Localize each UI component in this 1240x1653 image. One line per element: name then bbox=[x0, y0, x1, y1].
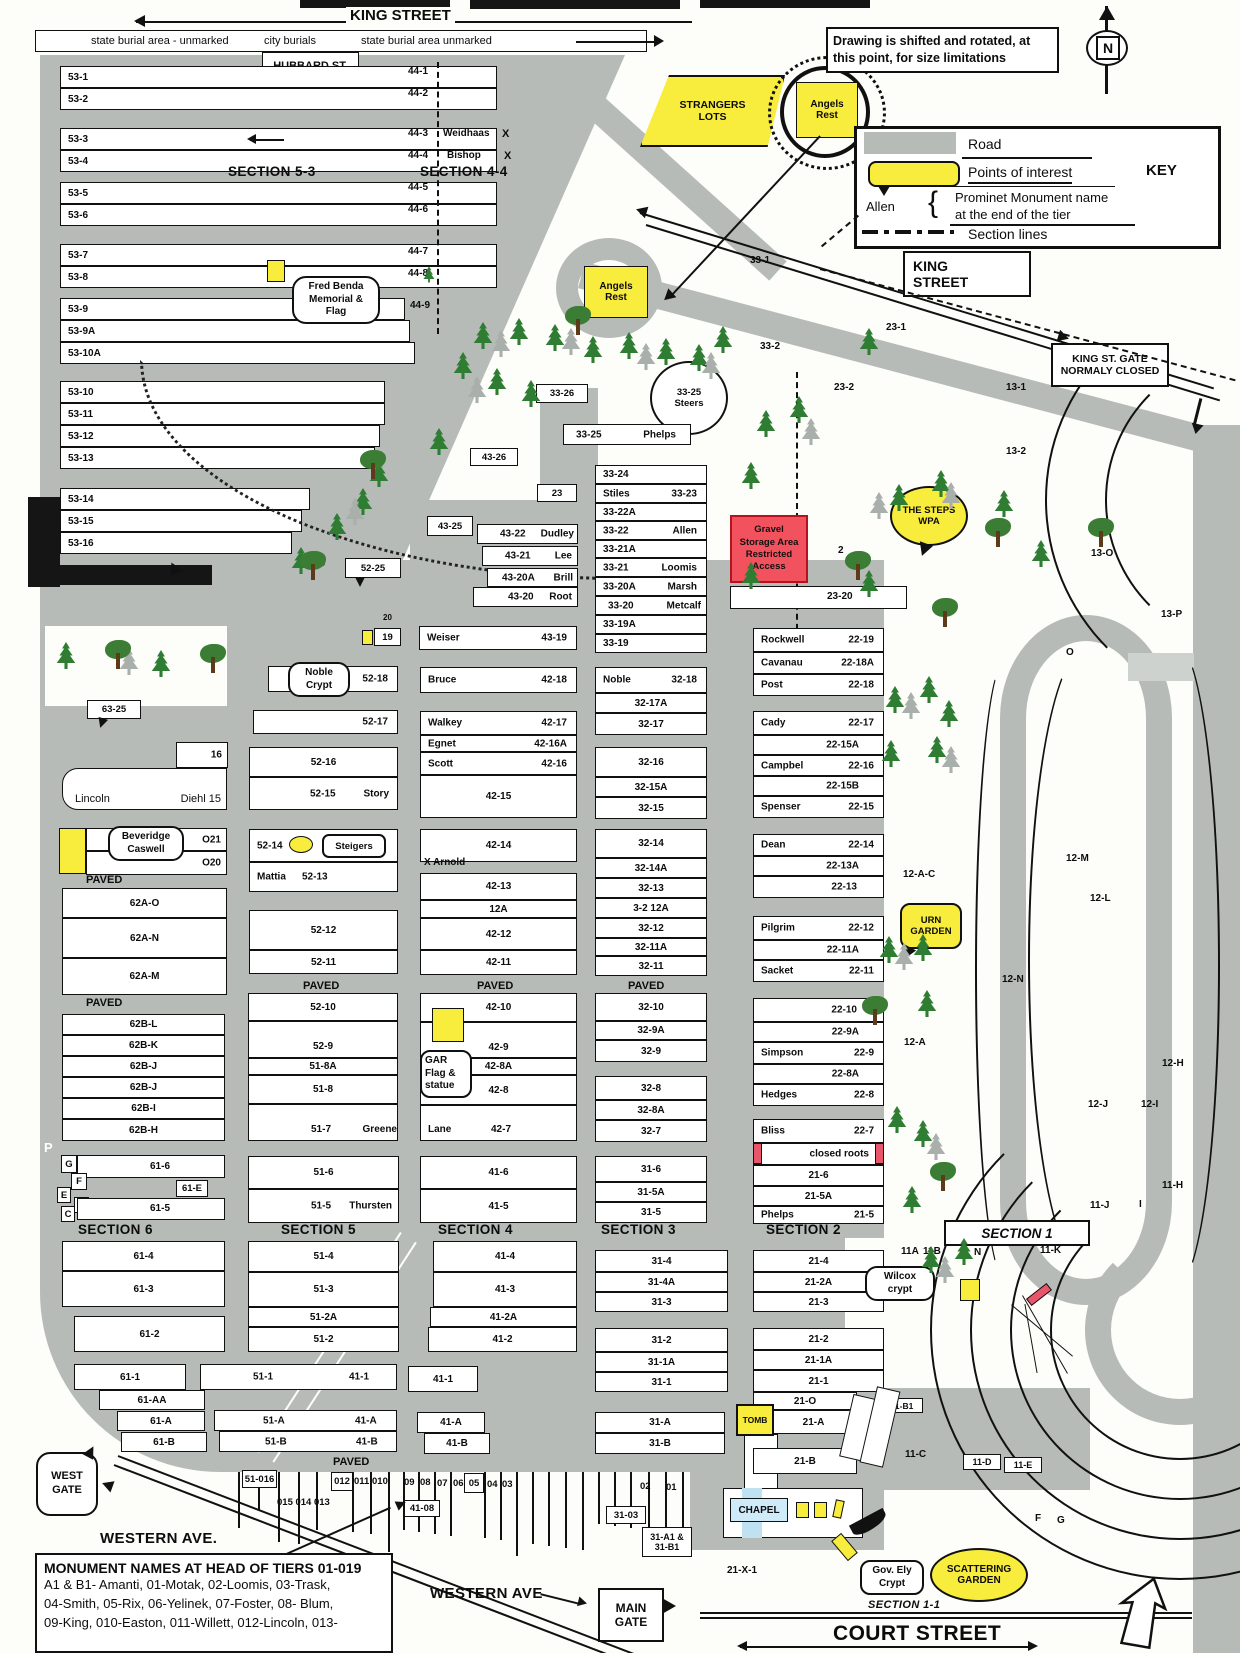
pine-tree-icon bbox=[582, 336, 604, 363]
chapel-marker bbox=[814, 1502, 827, 1518]
tier-row: 61-2 bbox=[74, 1316, 225, 1352]
monument-label: Rockwell bbox=[761, 635, 804, 646]
tier-label: 41-5 bbox=[488, 1201, 508, 1212]
poi-label: GARDEN bbox=[910, 926, 951, 937]
tier-label: 51-A bbox=[263, 1415, 285, 1426]
monument-label: Pilgrim bbox=[761, 923, 795, 934]
lot-box: G bbox=[61, 1155, 77, 1173]
tier-row: 31-4A bbox=[595, 1272, 728, 1292]
lot-box: 23 bbox=[537, 484, 577, 502]
black-area bbox=[28, 497, 60, 587]
tier-row: 21-4 bbox=[753, 1250, 884, 1272]
poi-label: Crypt bbox=[306, 680, 332, 691]
burial-band: state burial area - unmarked city burial… bbox=[35, 30, 647, 52]
tier-row: 62B-H bbox=[62, 1119, 225, 1141]
tier-label: 51-1 bbox=[253, 1372, 273, 1383]
pine-tree-icon bbox=[712, 326, 734, 353]
tier-label: 32-11 bbox=[638, 961, 663, 972]
key-title: KEY bbox=[1146, 162, 1177, 179]
tier-label: 42-7 bbox=[491, 1124, 511, 1135]
lot-label: I bbox=[1139, 1199, 1142, 1210]
tier-row: Pilgrim22-12 bbox=[753, 916, 884, 940]
tier-label: 31-2 bbox=[651, 1335, 671, 1346]
lot-box: 11-D bbox=[963, 1454, 1001, 1470]
tier-row: Weiser43-19 bbox=[419, 626, 577, 650]
tier-row: 22-15A bbox=[753, 735, 884, 755]
tier-label: 44-9 bbox=[410, 300, 430, 311]
monument-label: Hedges bbox=[761, 1090, 797, 1101]
tier-row: 53-5 bbox=[60, 182, 497, 204]
shadow-tree-icon bbox=[900, 692, 922, 719]
tier-label: 32-7 bbox=[641, 1126, 661, 1137]
tier-label: 44-3 bbox=[408, 128, 428, 139]
lot-label: 11-J bbox=[1090, 1200, 1109, 1211]
tier-line bbox=[532, 1472, 534, 1544]
tier-line bbox=[598, 1472, 600, 1524]
burial-band-label: state burial area unmarked bbox=[361, 35, 492, 47]
monument-label: Lane bbox=[428, 1124, 451, 1135]
tier-row: 51-3 bbox=[248, 1272, 399, 1307]
poi-label: GARDEN bbox=[957, 1575, 1000, 1586]
monument-label: Phelps bbox=[761, 1210, 794, 1221]
lot-label: 23-2 bbox=[834, 382, 854, 393]
pine-tree-icon bbox=[740, 462, 762, 489]
tier-row: 32-15A bbox=[595, 777, 707, 797]
beveridge-marker bbox=[59, 828, 86, 874]
monument-label: Allen bbox=[673, 525, 697, 536]
tier-label: 41-1 bbox=[433, 1374, 453, 1385]
tier-label: 32-17 bbox=[638, 719, 664, 730]
cemetery-map: KING STREET state burial area - unmarked… bbox=[0, 0, 1240, 1653]
tier-label: 22-11A bbox=[827, 945, 859, 956]
tier-label: 53-10A bbox=[68, 348, 101, 359]
poi-label: STRANGERS bbox=[680, 99, 746, 111]
arrow-left-icon bbox=[242, 134, 256, 144]
tier-label: 53-6 bbox=[68, 210, 88, 221]
tier-label: 51-5 bbox=[311, 1201, 331, 1212]
tier-label: 44-6 bbox=[408, 204, 428, 215]
tier-row: 52-15Story bbox=[249, 777, 398, 810]
tier-label: 41-A bbox=[355, 1415, 377, 1426]
tier-label: 44-5 bbox=[408, 182, 428, 193]
tier-row: Sacket22-11 bbox=[753, 960, 884, 982]
shadow-tree-icon bbox=[800, 418, 822, 445]
tier-row: 32-14A bbox=[595, 858, 707, 878]
street-label: COURT STREET bbox=[833, 1622, 1001, 1646]
tier-line bbox=[516, 1472, 518, 1556]
road-letter: P bbox=[44, 1140, 53, 1155]
section-label: SECTION 2 bbox=[766, 1222, 841, 1237]
tier-label: 31-B bbox=[649, 1438, 671, 1449]
tier-label: 61-AA bbox=[138, 1395, 167, 1406]
tier-label: 52-17 bbox=[362, 717, 388, 728]
tier-label: 33-19A bbox=[603, 619, 636, 630]
tier-row: 33-21Loomis bbox=[595, 558, 707, 577]
burial-band-label: city burials bbox=[264, 35, 316, 47]
tier-box: 31-03 bbox=[606, 1506, 646, 1524]
tier-row: 62A-N bbox=[62, 918, 227, 958]
tier-label: 41-B bbox=[446, 1438, 468, 1449]
tier-label: 53-14 bbox=[68, 494, 94, 505]
tier-label: 44-2 bbox=[408, 88, 428, 99]
lot-label: 23-1 bbox=[886, 322, 906, 333]
street-label: STREET bbox=[913, 274, 968, 290]
poi-label: Rest bbox=[605, 292, 627, 303]
tier-label: 08 bbox=[420, 1477, 431, 1488]
beveridge-callout: Beveridge Caswell bbox=[108, 826, 184, 861]
tier-label: 41-B bbox=[356, 1436, 378, 1447]
lot-box: 33-26 bbox=[536, 384, 588, 403]
monument-label: Scott bbox=[428, 758, 453, 769]
monument-label: Root bbox=[549, 592, 572, 603]
tier-row: Lincoln Diehl 15 bbox=[62, 768, 227, 810]
deciduous-tree-icon bbox=[862, 996, 888, 1025]
tier-row: 32-14 bbox=[595, 829, 707, 858]
tier-row: 42-11 bbox=[420, 950, 577, 975]
poi-label: Noble bbox=[305, 667, 333, 678]
lot-label: 12-L bbox=[1090, 893, 1111, 904]
tier-label: 53-15 bbox=[68, 516, 94, 527]
tier-row: 42-15 bbox=[420, 775, 577, 818]
tier-label: 41-1 bbox=[349, 1372, 369, 1383]
x-mark: X bbox=[502, 128, 509, 140]
tier-row: Bruce42-18 bbox=[420, 667, 577, 693]
tier-row: 31-2 bbox=[595, 1328, 728, 1352]
tier-label: 33-23 bbox=[671, 488, 697, 499]
tier-label: 51-8A bbox=[309, 1061, 336, 1072]
tier-row: Simpson22-9 bbox=[753, 1042, 884, 1064]
tier-row: 32-10 bbox=[595, 993, 707, 1021]
tier-label: 61-4 bbox=[133, 1251, 153, 1262]
monument-label: Thursten bbox=[349, 1201, 392, 1212]
poi-label: URN bbox=[921, 915, 942, 926]
monument-label: Simpson bbox=[761, 1048, 803, 1059]
tier-line bbox=[582, 1472, 584, 1550]
section-label: SECTION 4 bbox=[438, 1222, 513, 1237]
tier-label: 22-18 bbox=[848, 680, 874, 691]
tier-label: 51-2 bbox=[313, 1334, 333, 1345]
key-rule bbox=[962, 157, 1092, 159]
tier-label: 32-11A bbox=[635, 942, 667, 953]
king-street-box: KING STREET bbox=[903, 251, 1031, 297]
tier-row: 43-22Dudley bbox=[477, 524, 578, 544]
monument-label: Metcalf bbox=[667, 600, 701, 611]
tier-label: 53-12 bbox=[68, 431, 94, 442]
arrow-icon bbox=[577, 1596, 593, 1609]
tier-label: 07 bbox=[437, 1478, 448, 1489]
monument-label: Cavanau bbox=[761, 658, 803, 669]
tier-row: 33-22Allen bbox=[595, 521, 707, 540]
tier-label: 010 bbox=[372, 1476, 388, 1487]
tier-label: 22-16 bbox=[848, 760, 874, 771]
lot-box: 19 bbox=[374, 628, 401, 646]
section-label: SECTION 5-3 bbox=[228, 164, 316, 179]
monument-label: Weidhaas bbox=[443, 128, 490, 139]
tier-row: 52-16 bbox=[249, 747, 398, 777]
deciduous-tree-icon bbox=[360, 450, 386, 479]
tier-row: 33-21A bbox=[595, 540, 707, 558]
section-label: SECTION 3 bbox=[601, 1222, 676, 1237]
arrow-icon bbox=[629, 202, 649, 218]
clipped-title-fragment bbox=[700, 0, 870, 8]
tier-label: 42-17 bbox=[541, 718, 567, 729]
tier-label: 12A bbox=[489, 904, 507, 915]
monument-label: Diehl 15 bbox=[181, 793, 221, 805]
tier-row: 12A bbox=[420, 900, 577, 918]
lot-label: 11-C bbox=[905, 1449, 926, 1460]
tier-label: 42-10 bbox=[486, 1002, 512, 1013]
tier-label: 52-9 bbox=[313, 1041, 333, 1052]
poi-label: Memorial & bbox=[309, 294, 363, 305]
tier-label: 53-10 bbox=[68, 387, 94, 398]
tier-label: 22-15B bbox=[826, 781, 859, 792]
lot-label: 33-2 bbox=[760, 341, 780, 352]
lot-label: N bbox=[974, 1247, 981, 1258]
tier-label: 3-2 12A bbox=[633, 903, 669, 914]
x-mark: X bbox=[504, 150, 511, 162]
tier-row: 52-14 Steigers bbox=[249, 829, 398, 862]
arrow-left-icon bbox=[732, 1641, 747, 1651]
tier-row: 31-5 bbox=[595, 1202, 707, 1223]
tier-row: 52-12 bbox=[249, 910, 398, 950]
tier-row: 41-2A bbox=[430, 1307, 577, 1327]
tier-row: 21-1A bbox=[753, 1350, 884, 1370]
tier-label: 62B-H bbox=[129, 1125, 158, 1136]
callout-tail bbox=[662, 1598, 684, 1614]
tier-row: 32-8A bbox=[595, 1100, 707, 1120]
tier-label: 21-5A bbox=[805, 1191, 832, 1202]
tier-label: 52-15 bbox=[310, 788, 336, 799]
tier-row: 51-8 bbox=[248, 1075, 398, 1104]
tier-line bbox=[665, 1472, 667, 1530]
pine-tree-icon bbox=[544, 324, 566, 351]
lot-box: 61-E bbox=[176, 1180, 208, 1197]
lot-label: 33-1 bbox=[750, 255, 770, 266]
tier-row: 41-5 bbox=[420, 1189, 577, 1223]
pine-tree-icon bbox=[938, 700, 960, 727]
tier-label: 53-9 bbox=[68, 304, 88, 315]
tier-row: 52-10 bbox=[248, 993, 398, 1021]
tier-label: 31-3 bbox=[651, 1297, 671, 1308]
tier-label: 51-4 bbox=[313, 1251, 333, 1262]
tier-row: 41-1 bbox=[408, 1366, 478, 1392]
tier-row: 41-3 bbox=[433, 1272, 577, 1307]
tier-label: O21 bbox=[202, 834, 221, 845]
tier-line bbox=[484, 1472, 486, 1538]
monument-label: Noble bbox=[603, 675, 631, 686]
tier-label: 32-18 bbox=[671, 675, 697, 686]
gov-ely-callout: Gov. ElyCrypt bbox=[860, 1560, 924, 1595]
monument-label: Stiles bbox=[603, 488, 630, 499]
tier-row: Noble32-18 bbox=[595, 667, 707, 693]
tier-row: 33-24 bbox=[595, 465, 707, 484]
gar-callout: GARFlag &statue bbox=[420, 1050, 472, 1098]
tier-row: 62B-J bbox=[62, 1077, 225, 1098]
paved-label: PAVED bbox=[477, 980, 513, 992]
tier-line bbox=[298, 1472, 300, 1544]
tier-row: 61-4 bbox=[62, 1241, 225, 1271]
tier-label: 22-19 bbox=[848, 635, 874, 646]
tier-row: 61-AA bbox=[99, 1390, 205, 1410]
tier-row: 61-1 bbox=[74, 1364, 186, 1390]
monument-label: Bruce bbox=[428, 675, 456, 686]
lot-label: 12-N bbox=[1002, 974, 1024, 985]
tier-label: 61-1 bbox=[120, 1372, 140, 1383]
tier-label: 22-12 bbox=[848, 923, 874, 934]
tier-row: Stiles33-23 bbox=[595, 484, 707, 503]
poi-label: Access bbox=[752, 561, 785, 573]
monument-label: X Arnold bbox=[424, 857, 465, 868]
gate-label: MAIN bbox=[616, 1601, 647, 1615]
key-road-swatch bbox=[864, 132, 956, 154]
tier-row: 62B-I bbox=[62, 1098, 225, 1119]
lot-label: 11A bbox=[901, 1246, 919, 1257]
tier-label: 42-9 bbox=[488, 1042, 508, 1053]
tier-label: 32-9 bbox=[641, 1046, 661, 1057]
lot-label: G bbox=[1057, 1515, 1065, 1526]
street-label: KING bbox=[913, 258, 948, 274]
pine-tree-icon bbox=[993, 490, 1015, 517]
marker-19 bbox=[362, 630, 373, 645]
lot-label: 12-I bbox=[1141, 1099, 1158, 1110]
tomb-box: TOMB bbox=[736, 1404, 774, 1436]
key-label: Allen bbox=[866, 199, 895, 214]
tier-row: 41-2 bbox=[428, 1327, 577, 1352]
tier-label: 42-13 bbox=[486, 881, 512, 892]
tier-label: 21-A bbox=[803, 1417, 825, 1428]
paved-label: PAVED bbox=[628, 980, 664, 992]
compass-arrow-icon bbox=[1099, 0, 1115, 20]
tier-row: 61-6 bbox=[77, 1155, 225, 1178]
deciduous-tree-icon bbox=[565, 306, 591, 335]
pine-tree-icon bbox=[508, 318, 530, 345]
deciduous-tree-icon bbox=[1088, 518, 1114, 547]
tier-label: 32-17A bbox=[635, 698, 668, 709]
tier-row: 52-9 bbox=[248, 1021, 398, 1058]
tier-label: 22-18A bbox=[841, 658, 874, 669]
tier-row: Bliss22-7 bbox=[753, 1119, 884, 1143]
tier-row: 51-8A bbox=[248, 1058, 398, 1075]
tier-label: 42-11 bbox=[486, 957, 511, 968]
tier-row: 62A-M bbox=[62, 958, 227, 995]
tier-label: 33-21A bbox=[603, 544, 636, 555]
tier-label: 61-2 bbox=[139, 1329, 159, 1340]
tier-label: 41-3 bbox=[495, 1284, 515, 1295]
tier-row: 31-1 bbox=[595, 1372, 728, 1392]
tier-label: 61-5 bbox=[150, 1203, 170, 1214]
lot-box: F bbox=[71, 1173, 87, 1190]
tier-label: 22-11 bbox=[849, 966, 874, 977]
tier-row: 53-1 bbox=[60, 66, 497, 88]
tier-label: 62B-I bbox=[131, 1103, 155, 1114]
section-label: SECTION 6 bbox=[78, 1222, 153, 1237]
tier-row: 32-7 bbox=[595, 1120, 707, 1142]
tier-row: 62B-L bbox=[62, 1014, 225, 1035]
tier-row: closed roots bbox=[753, 1143, 884, 1165]
tier-label: 31-1A bbox=[648, 1357, 675, 1368]
tier-label: 21-5 bbox=[854, 1210, 874, 1221]
angels-rest-box: Angels Rest bbox=[584, 266, 648, 318]
lot-label: 12-M bbox=[1066, 853, 1089, 864]
closed-cap bbox=[753, 1143, 762, 1164]
tier-label: 32-9A bbox=[637, 1025, 664, 1036]
tier-row: 61-B bbox=[121, 1432, 207, 1452]
tier-row: 32-13 bbox=[595, 878, 707, 898]
monument-label: Weiser bbox=[427, 633, 460, 644]
tier-row: 42-13 bbox=[420, 873, 577, 900]
monument-names-title: MONUMENT NAMES AT HEAD OF TIERS 01-019 bbox=[44, 1560, 384, 1576]
gate-label: GATE bbox=[615, 1615, 647, 1629]
tier-label: 32-12 bbox=[638, 923, 664, 934]
tier-label: 32-15 bbox=[638, 803, 664, 814]
lot-label: 20 bbox=[383, 613, 392, 622]
tier-label: 22-15 bbox=[848, 802, 874, 813]
tier-label: 011 bbox=[354, 1476, 369, 1487]
arrow-right-icon bbox=[654, 35, 670, 47]
tier-row: 31-4 bbox=[595, 1250, 728, 1272]
tier-label: 52-18 bbox=[362, 674, 388, 685]
poi-label: Restricted bbox=[746, 549, 792, 561]
tier-label: O20 bbox=[202, 858, 221, 869]
tier-label: 33-20 bbox=[608, 600, 634, 611]
tier-label: 44-1 bbox=[408, 66, 428, 77]
tier-row: 31-3 bbox=[595, 1292, 728, 1312]
monument-label: Spenser bbox=[761, 802, 800, 813]
tier-box: 51-016 bbox=[242, 1470, 277, 1488]
steigers-callout: Steigers bbox=[322, 834, 386, 858]
tier-label: 32-8A bbox=[637, 1105, 664, 1116]
monument-label: Dudley bbox=[541, 529, 574, 540]
shadow-tree-icon bbox=[635, 343, 657, 370]
tier-label: 015 014 013 bbox=[277, 1497, 330, 1508]
steigers-marker bbox=[289, 836, 313, 853]
tier-row: 51-5Thursten bbox=[248, 1189, 399, 1223]
poi-label: Gov. Ely bbox=[872, 1565, 911, 1576]
lot-box: 43-25 bbox=[427, 516, 473, 536]
monument-label: Lincoln bbox=[75, 793, 110, 805]
tier-label: 21-O bbox=[794, 1396, 816, 1407]
tier-label: 42-18 bbox=[541, 675, 567, 686]
tier-label: 51-7 bbox=[311, 1124, 331, 1135]
tier-row: Cady22-17 bbox=[753, 711, 884, 735]
deciduous-tree-icon bbox=[932, 598, 958, 627]
poi-label: WPA bbox=[918, 516, 939, 527]
tier-label: 42-16A bbox=[534, 738, 567, 749]
poi-label: Gravel bbox=[754, 524, 784, 536]
tier-row: 32-16 bbox=[595, 747, 707, 777]
tier-row: 22-9A bbox=[753, 1022, 884, 1042]
key-label: at the end of the tier bbox=[955, 207, 1071, 222]
tier-label: 31-4A bbox=[648, 1277, 675, 1288]
tier-label: 42-8A bbox=[485, 1061, 512, 1072]
tier-label: 33-25 bbox=[576, 429, 602, 440]
tier-row: 31-6 bbox=[595, 1156, 707, 1182]
tier-label: 22-8A bbox=[832, 1069, 859, 1080]
tier-row: 52-11 bbox=[249, 950, 398, 974]
tier-label: 03 bbox=[502, 1479, 513, 1490]
deciduous-tree-icon bbox=[105, 640, 131, 669]
poi-label: Storage Area bbox=[740, 537, 799, 549]
section-label: SECTION 1-1 bbox=[868, 1599, 940, 1611]
deciduous-tree-icon bbox=[985, 518, 1011, 547]
monument-label: Story bbox=[363, 788, 389, 799]
tier-label: 21-4 bbox=[808, 1256, 828, 1267]
tier-label: 51-2A bbox=[310, 1312, 337, 1323]
tier-row: 32-15 bbox=[595, 797, 707, 819]
monument-label: Post bbox=[761, 680, 783, 691]
gate-label: NORMALY CLOSED bbox=[1061, 365, 1160, 377]
tier-row: 21-6 bbox=[753, 1165, 884, 1186]
